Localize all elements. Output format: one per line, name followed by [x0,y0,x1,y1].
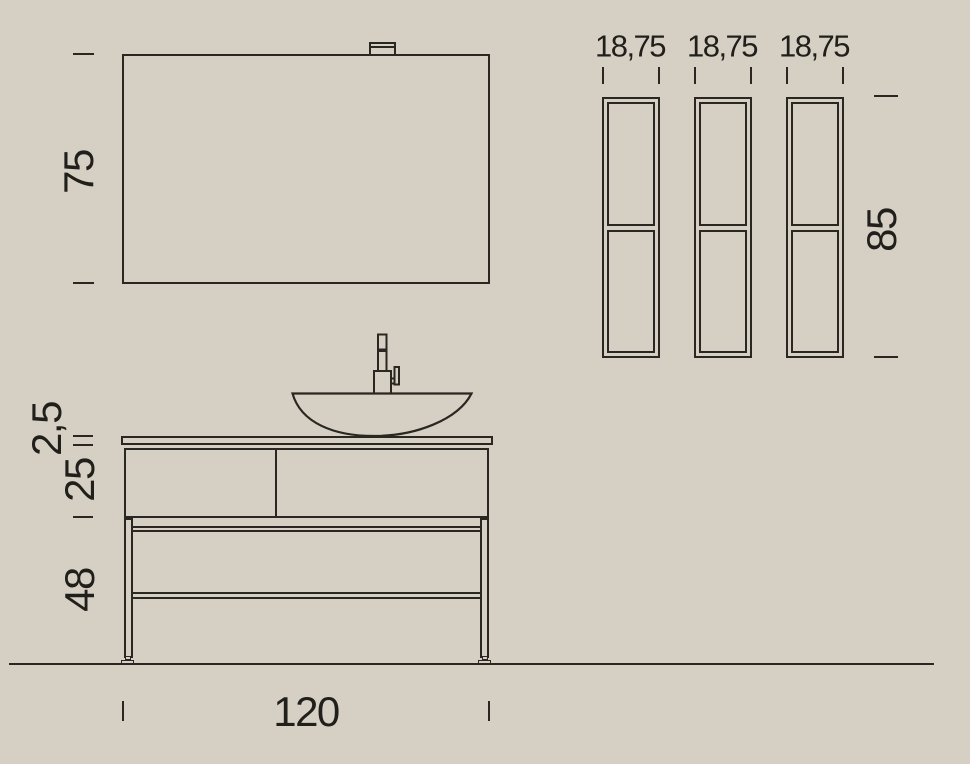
drawer-divider [275,450,277,516]
dim-vanity-width-label: 120 [273,691,339,733]
dim-counter-top-tick [73,435,93,437]
faucet-joint [378,349,387,353]
dim-counter-thickness-label: 2,5 [26,402,68,456]
floor-line [9,663,934,665]
frame-shelf [131,592,482,599]
dim-counter-bottom-tick [73,444,93,446]
drawer-box [124,448,489,518]
frame-right-leg [480,518,489,658]
faucet-spout [378,335,387,372]
dim-width-left-tick [122,701,124,721]
countertop [121,436,493,445]
dim-drawer-bottom-tick [73,516,93,518]
vessel-sink-bowl [293,394,472,437]
frame-left-leg [124,518,133,658]
dim-drawer-height-label: 25 [59,458,101,502]
technical-drawing-canvas: 75 18,75 18,75 18,75 85 [0,0,970,764]
faucet-body [374,371,391,395]
dim-frame-height-label: 48 [59,568,101,612]
frame-top-rail [131,526,482,532]
dim-width-right-tick [488,701,490,721]
faucet-handle [395,367,400,385]
